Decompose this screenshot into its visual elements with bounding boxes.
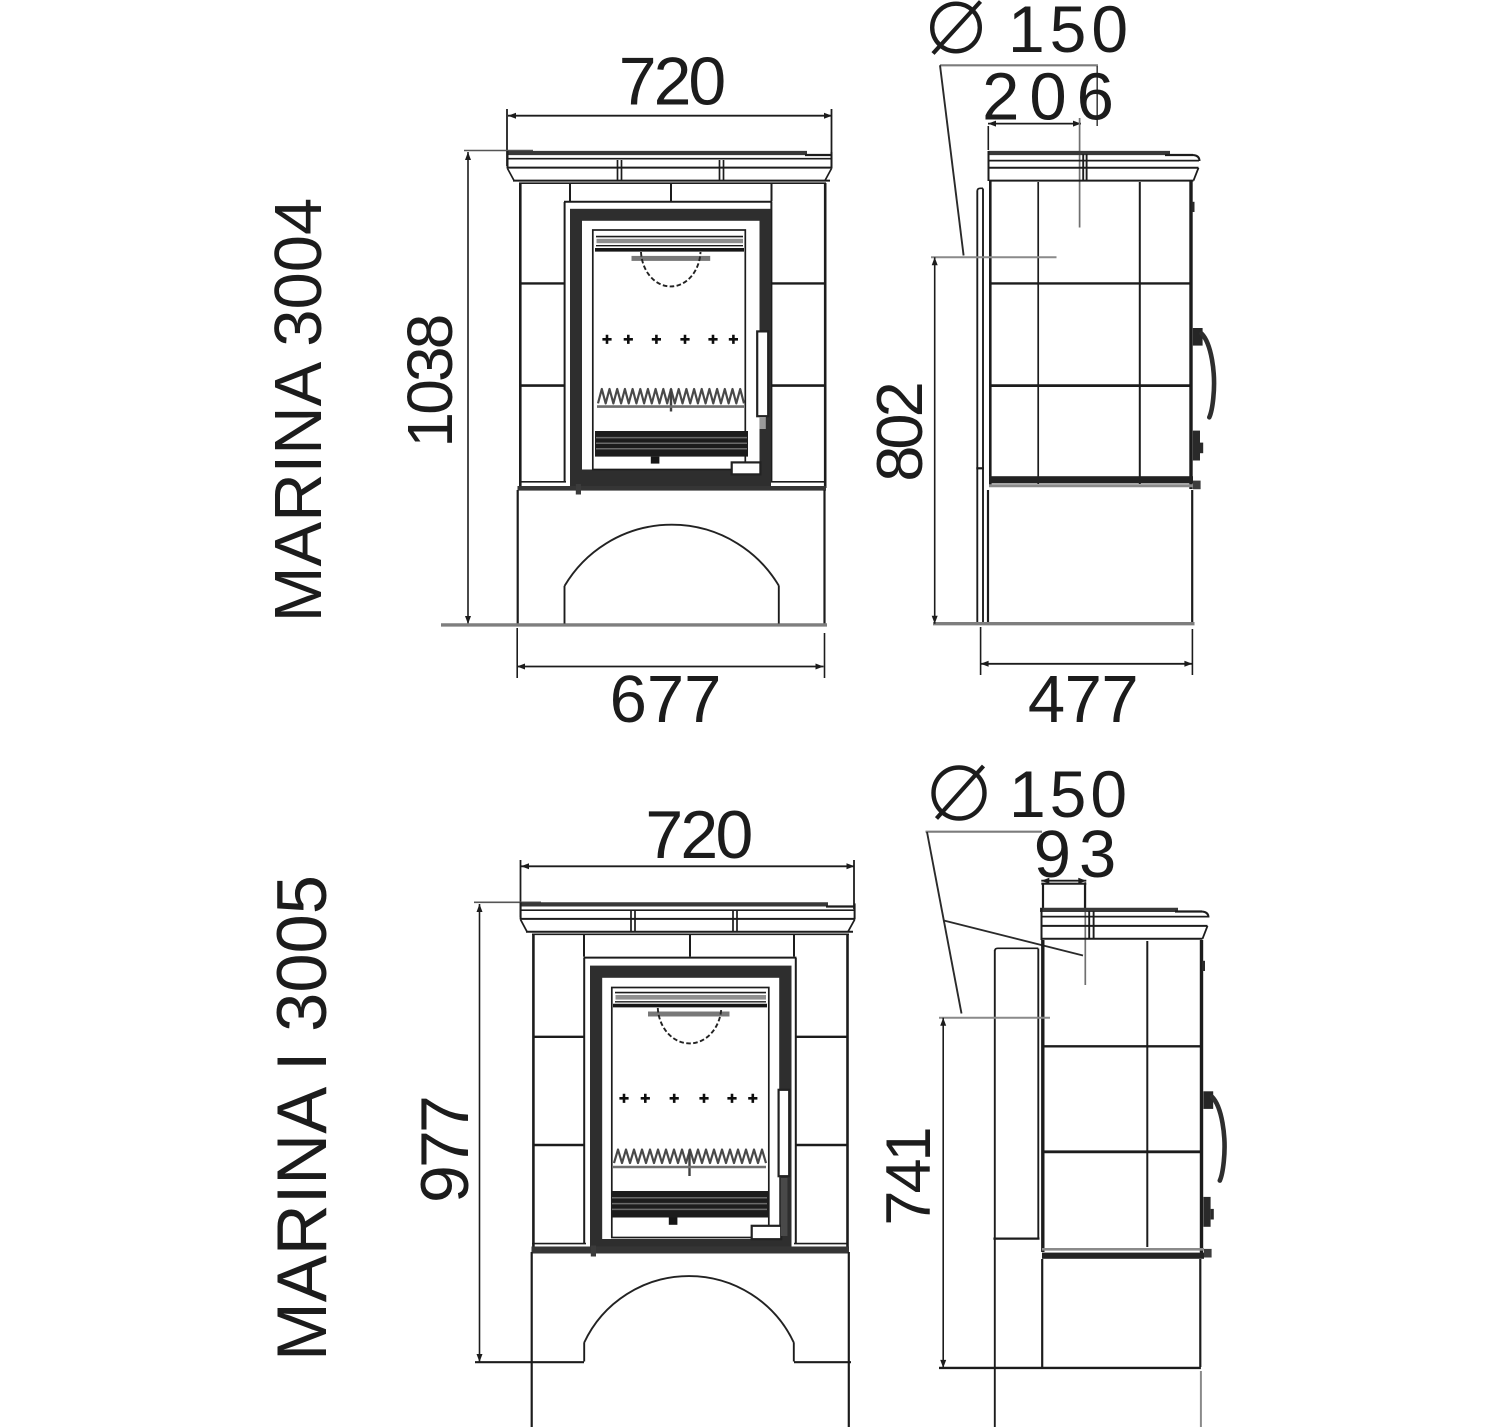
svg-text:741: 741 xyxy=(874,1129,944,1225)
svg-text:1038: 1038 xyxy=(394,316,466,447)
svg-text:802: 802 xyxy=(863,384,936,481)
svg-text:720: 720 xyxy=(645,797,751,873)
svg-text:MARINA I 3005: MARINA I 3005 xyxy=(262,875,341,1361)
svg-text:477: 477 xyxy=(1028,662,1138,737)
svg-text:MARINA 3004: MARINA 3004 xyxy=(261,198,336,623)
svg-text:720: 720 xyxy=(619,44,725,120)
svg-text:677: 677 xyxy=(610,662,722,737)
svg-text:977: 977 xyxy=(407,1098,483,1203)
svg-text:150: 150 xyxy=(1008,0,1133,66)
